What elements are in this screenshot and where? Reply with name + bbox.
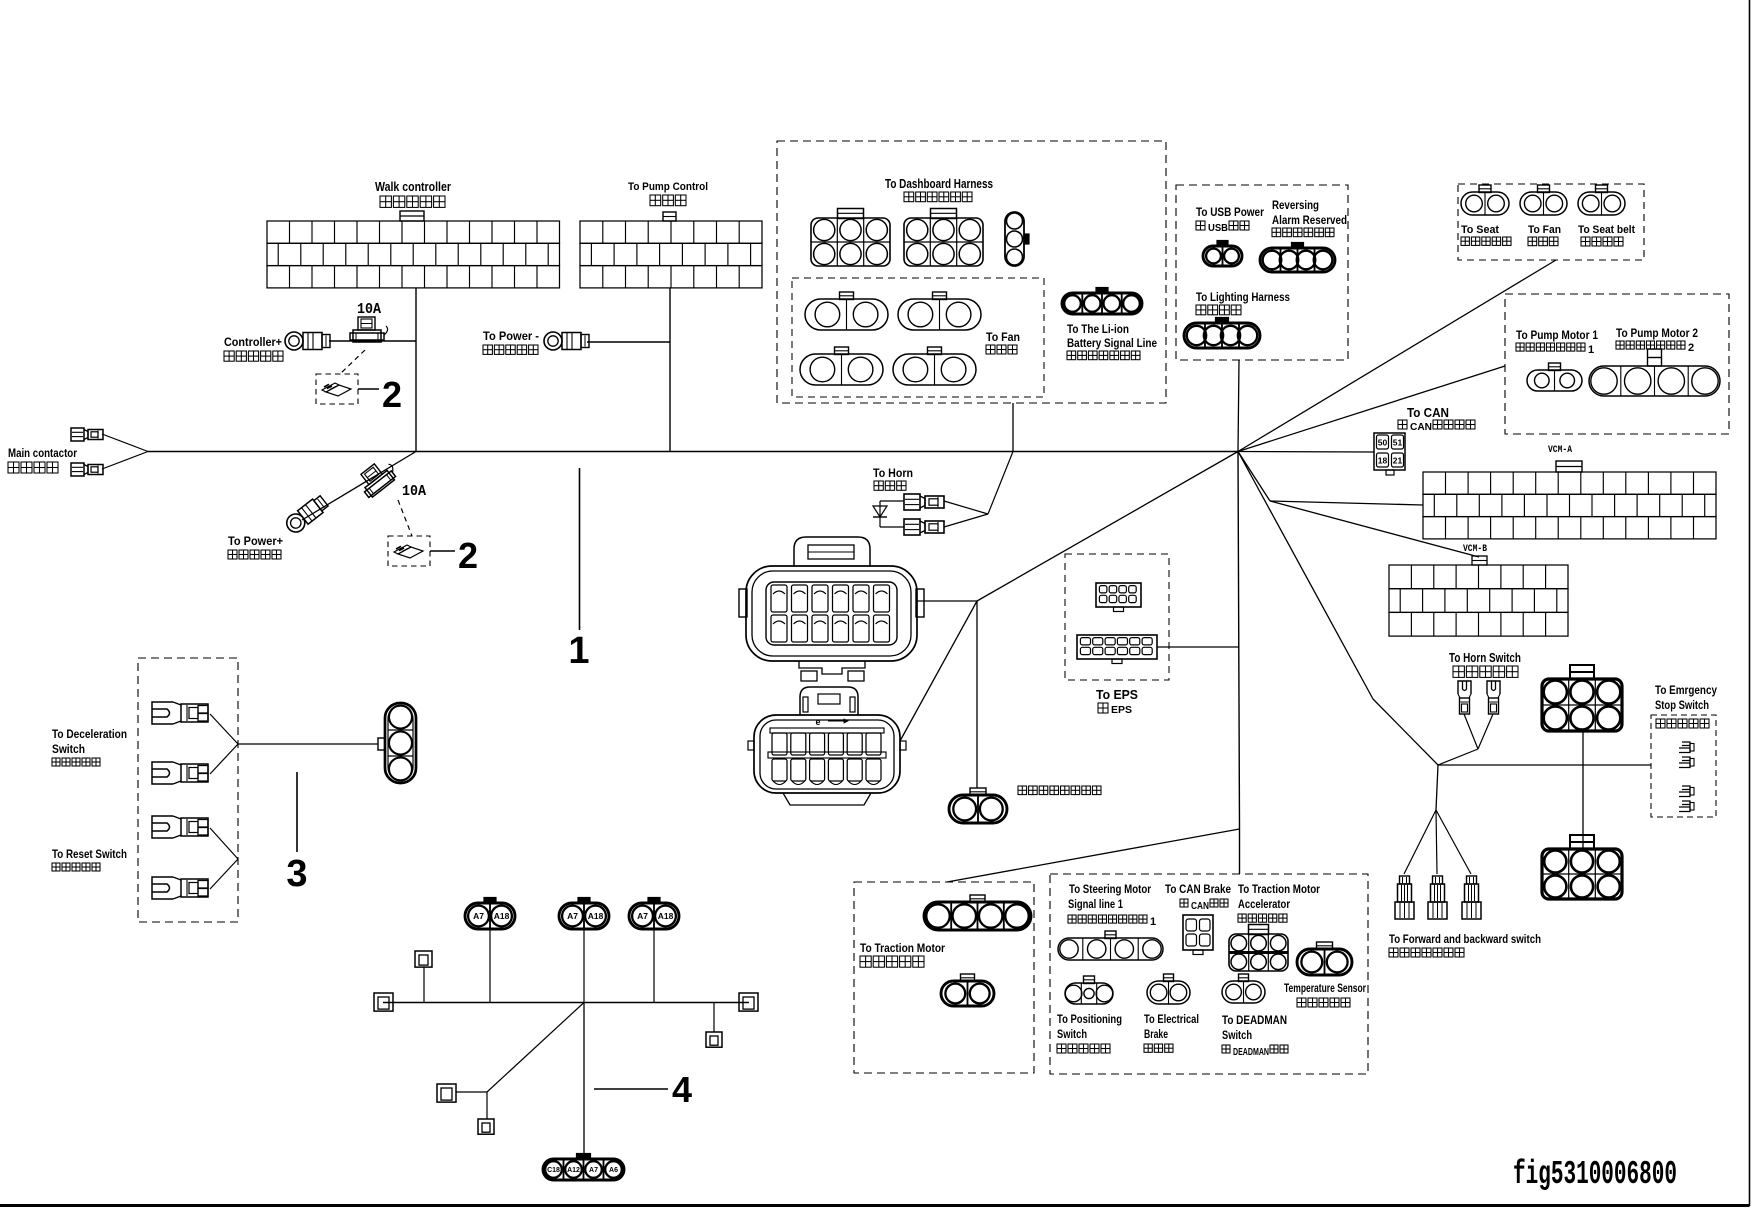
svg-text:A7: A7 (473, 911, 484, 921)
svg-text:To Positioning: To Positioning (1057, 1012, 1122, 1026)
svg-text:Stop Switch: Stop Switch (1655, 698, 1709, 712)
svg-text:21: 21 (1393, 456, 1403, 466)
svg-text:A18: A18 (588, 911, 604, 921)
svg-text:To Electrical: To Electrical (1144, 1012, 1199, 1026)
svg-text:18: 18 (1378, 456, 1388, 466)
svg-text:To Horn: To Horn (873, 466, 913, 480)
svg-text:2: 2 (1688, 342, 1694, 354)
svg-text:To Lighting Harness: To Lighting Harness (1196, 290, 1290, 304)
svg-text:To Seat: To Seat (1461, 224, 1499, 236)
svg-text:Battery Signal Line: Battery Signal Line (1067, 336, 1157, 350)
svg-text:To Fan: To Fan (1528, 224, 1561, 236)
svg-text:To CAN Brake: To CAN Brake (1165, 882, 1231, 896)
svg-text:A7: A7 (567, 911, 578, 921)
svg-text:To Deceleration: To Deceleration (52, 727, 127, 741)
svg-text:10A: 10A (357, 301, 381, 318)
svg-text:VCM-B: VCM-B (1463, 544, 1487, 555)
svg-text:VCM-A: VCM-A (1548, 445, 1572, 456)
svg-text:To The Li-ion: To The Li-ion (1067, 322, 1129, 336)
svg-text:C18: C18 (547, 1167, 560, 1174)
svg-text:4: 4 (672, 1069, 692, 1110)
svg-text:3: 3 (286, 853, 307, 895)
svg-text:50: 50 (1378, 438, 1388, 448)
svg-text:To Power+: To Power+ (228, 534, 283, 548)
svg-text:To CAN: To CAN (1407, 406, 1449, 420)
svg-text:Accelerator: Accelerator (1238, 897, 1290, 911)
svg-text:51: 51 (1393, 438, 1403, 448)
svg-text:Main contactor: Main contactor (8, 446, 77, 460)
svg-text:To USB Power: To USB Power (1196, 205, 1264, 219)
svg-text:Switch: Switch (1222, 1028, 1252, 1042)
svg-text:To Horn Switch: To Horn Switch (1449, 651, 1521, 665)
svg-text:A18: A18 (658, 911, 674, 921)
svg-text:To Reset Switch: To Reset Switch (52, 847, 127, 861)
svg-text:A7: A7 (637, 911, 648, 921)
svg-text:To EPS: To EPS (1096, 688, 1138, 702)
svg-text:To Fan: To Fan (986, 330, 1020, 344)
svg-text:2: 2 (458, 535, 478, 576)
svg-text:To Pump Motor 2: To Pump Motor 2 (1616, 326, 1698, 340)
svg-text:Brake: Brake (1144, 1027, 1168, 1041)
svg-text:1: 1 (568, 630, 589, 672)
svg-text:A7: A7 (589, 1167, 598, 1174)
svg-text:To Emrgency: To Emrgency (1655, 683, 1717, 697)
svg-text:Temperature Sensor: Temperature Sensor (1284, 983, 1366, 995)
svg-text:A12: A12 (567, 1167, 580, 1174)
svg-text:To Traction Motor: To Traction Motor (860, 941, 945, 955)
svg-text:To Seat belt: To Seat belt (1578, 224, 1635, 236)
svg-text:Switch: Switch (52, 742, 85, 756)
svg-text:1: 1 (1150, 916, 1156, 928)
svg-text:CAN: CAN (1191, 900, 1209, 912)
svg-text:Walk controller: Walk controller (375, 180, 451, 194)
svg-text:A18: A18 (494, 911, 510, 921)
svg-text:CAN: CAN (1410, 421, 1432, 433)
svg-text:Switch: Switch (1057, 1027, 1087, 1041)
svg-text:To Traction Motor: To Traction Motor (1238, 882, 1320, 896)
svg-text:To Dashboard Harness: To Dashboard Harness (885, 177, 993, 191)
svg-text:To DEADMAN: To DEADMAN (1222, 1013, 1287, 1027)
svg-text:Signal line 1: Signal line 1 (1068, 897, 1123, 911)
svg-text:To Power -: To Power - (483, 329, 539, 343)
svg-text:To Forward and backward switch: To Forward and backward switch (1389, 932, 1541, 946)
svg-text:Reversing: Reversing (1272, 198, 1319, 212)
svg-text:To Pump Control: To Pump Control (628, 181, 708, 193)
svg-text:To Pump Motor 1: To Pump Motor 1 (1516, 328, 1598, 342)
svg-text:To Steering Motor: To Steering Motor (1069, 882, 1151, 896)
svg-text:Alarm Reserved: Alarm Reserved (1272, 213, 1347, 227)
svg-text:USB: USB (1208, 222, 1228, 234)
svg-text:e: e (815, 717, 820, 727)
svg-text:1: 1 (1588, 344, 1594, 356)
svg-text:Controller+: Controller+ (224, 335, 282, 349)
svg-text:fig5310006800: fig5310006800 (1513, 1156, 1677, 1193)
svg-text:EPS: EPS (1111, 704, 1132, 716)
svg-text:A6: A6 (609, 1167, 618, 1174)
svg-text:DEADMAN: DEADMAN (1233, 1046, 1269, 1058)
svg-text:10A: 10A (402, 483, 426, 500)
svg-text:2: 2 (382, 374, 402, 415)
